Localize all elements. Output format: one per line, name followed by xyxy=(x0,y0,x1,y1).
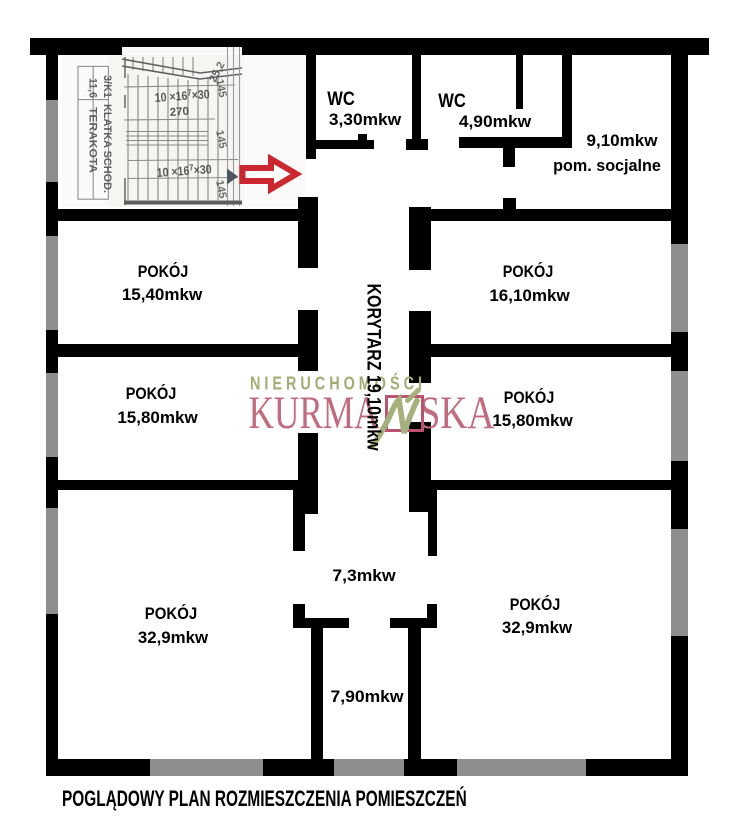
svg-text:11,6: 11,6 xyxy=(87,78,99,98)
svg-text:270: 270 xyxy=(169,106,189,119)
svg-text:TERAKOTA: TERAKOTA xyxy=(87,107,99,173)
svg-text:KLATKA SCHOD.: KLATKA SCHOD. xyxy=(101,104,113,193)
svg-text:3/K1: 3/K1 xyxy=(101,75,113,98)
